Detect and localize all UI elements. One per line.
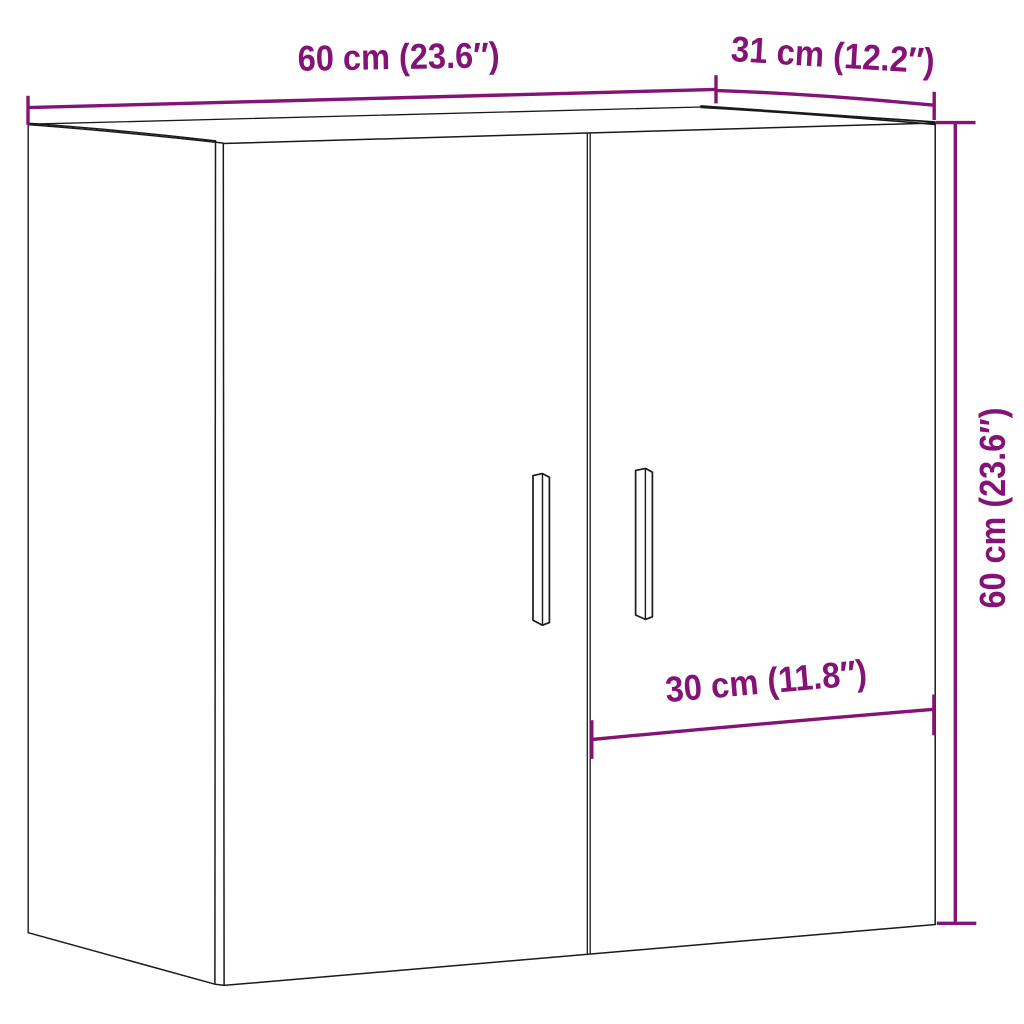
svg-text:60 cm (23.6″): 60 cm (23.6″) [297, 34, 500, 79]
svg-text:60 cm (23.6″): 60 cm (23.6″) [972, 408, 1013, 609]
